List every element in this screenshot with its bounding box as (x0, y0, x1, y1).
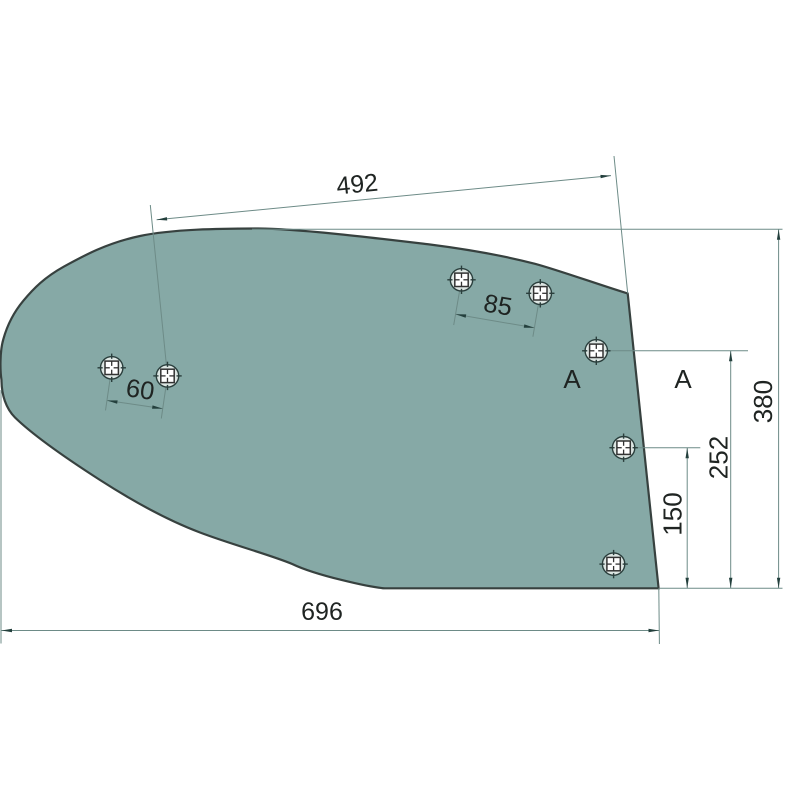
svg-text:60: 60 (124, 374, 156, 406)
svg-text:380: 380 (748, 380, 778, 423)
svg-text:150: 150 (658, 492, 688, 535)
svg-text:492: 492 (335, 169, 379, 201)
svg-text:85: 85 (482, 289, 515, 321)
svg-text:252: 252 (704, 436, 734, 479)
svg-text:696: 696 (301, 598, 343, 626)
svg-text:A: A (563, 364, 581, 394)
svg-text:A: A (674, 364, 692, 394)
